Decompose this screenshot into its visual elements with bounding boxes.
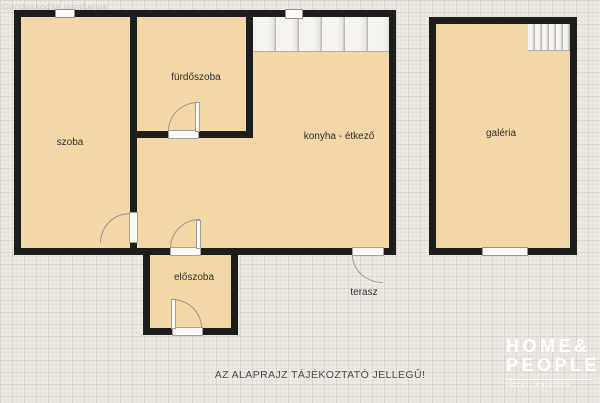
wall-segment [246, 10, 253, 138]
wall-segment [570, 17, 577, 255]
door-threshold [129, 212, 138, 243]
logo-divider [506, 379, 592, 380]
logo-line2: PEOPLE [506, 356, 600, 375]
window [55, 9, 75, 18]
stairs-main [253, 17, 389, 52]
brand-logo: HOME& PEOPLE INGATLANIRODA [506, 337, 600, 389]
window [482, 247, 528, 256]
door-arc [352, 255, 383, 283]
logo-line1: HOME& [506, 337, 600, 356]
floorplan-canvas: Gondoskodás ingatlanok szoba fürdőszoba [0, 0, 600, 403]
room-szoba [21, 17, 130, 248]
room-label-terasz: terasz [350, 287, 377, 298]
room-label-szoba: szoba [57, 137, 84, 148]
wall-segment [429, 17, 436, 255]
wall-segment [143, 255, 150, 335]
wall-segment [231, 255, 238, 335]
room-label-galeria: galéria [486, 128, 516, 139]
wall-segment [389, 10, 396, 255]
room-label-eloszoba: előszoba [174, 272, 214, 283]
wall-segment [14, 10, 21, 255]
stairs-galeria [528, 24, 570, 51]
door-threshold [172, 327, 203, 336]
wall-segment [429, 17, 577, 24]
wall-segment [14, 248, 396, 255]
window [285, 9, 303, 19]
room-label-konyha-etkezo: konyha - étkező [304, 131, 375, 142]
logo-tagline: INGATLANIRODA [506, 383, 600, 389]
disclaimer-text: AZ ALAPRAJZ TÁJÉKOZTATÓ JELLEGŰ! [215, 369, 426, 381]
room-label-furdoszoba: fürdőszoba [171, 72, 220, 83]
